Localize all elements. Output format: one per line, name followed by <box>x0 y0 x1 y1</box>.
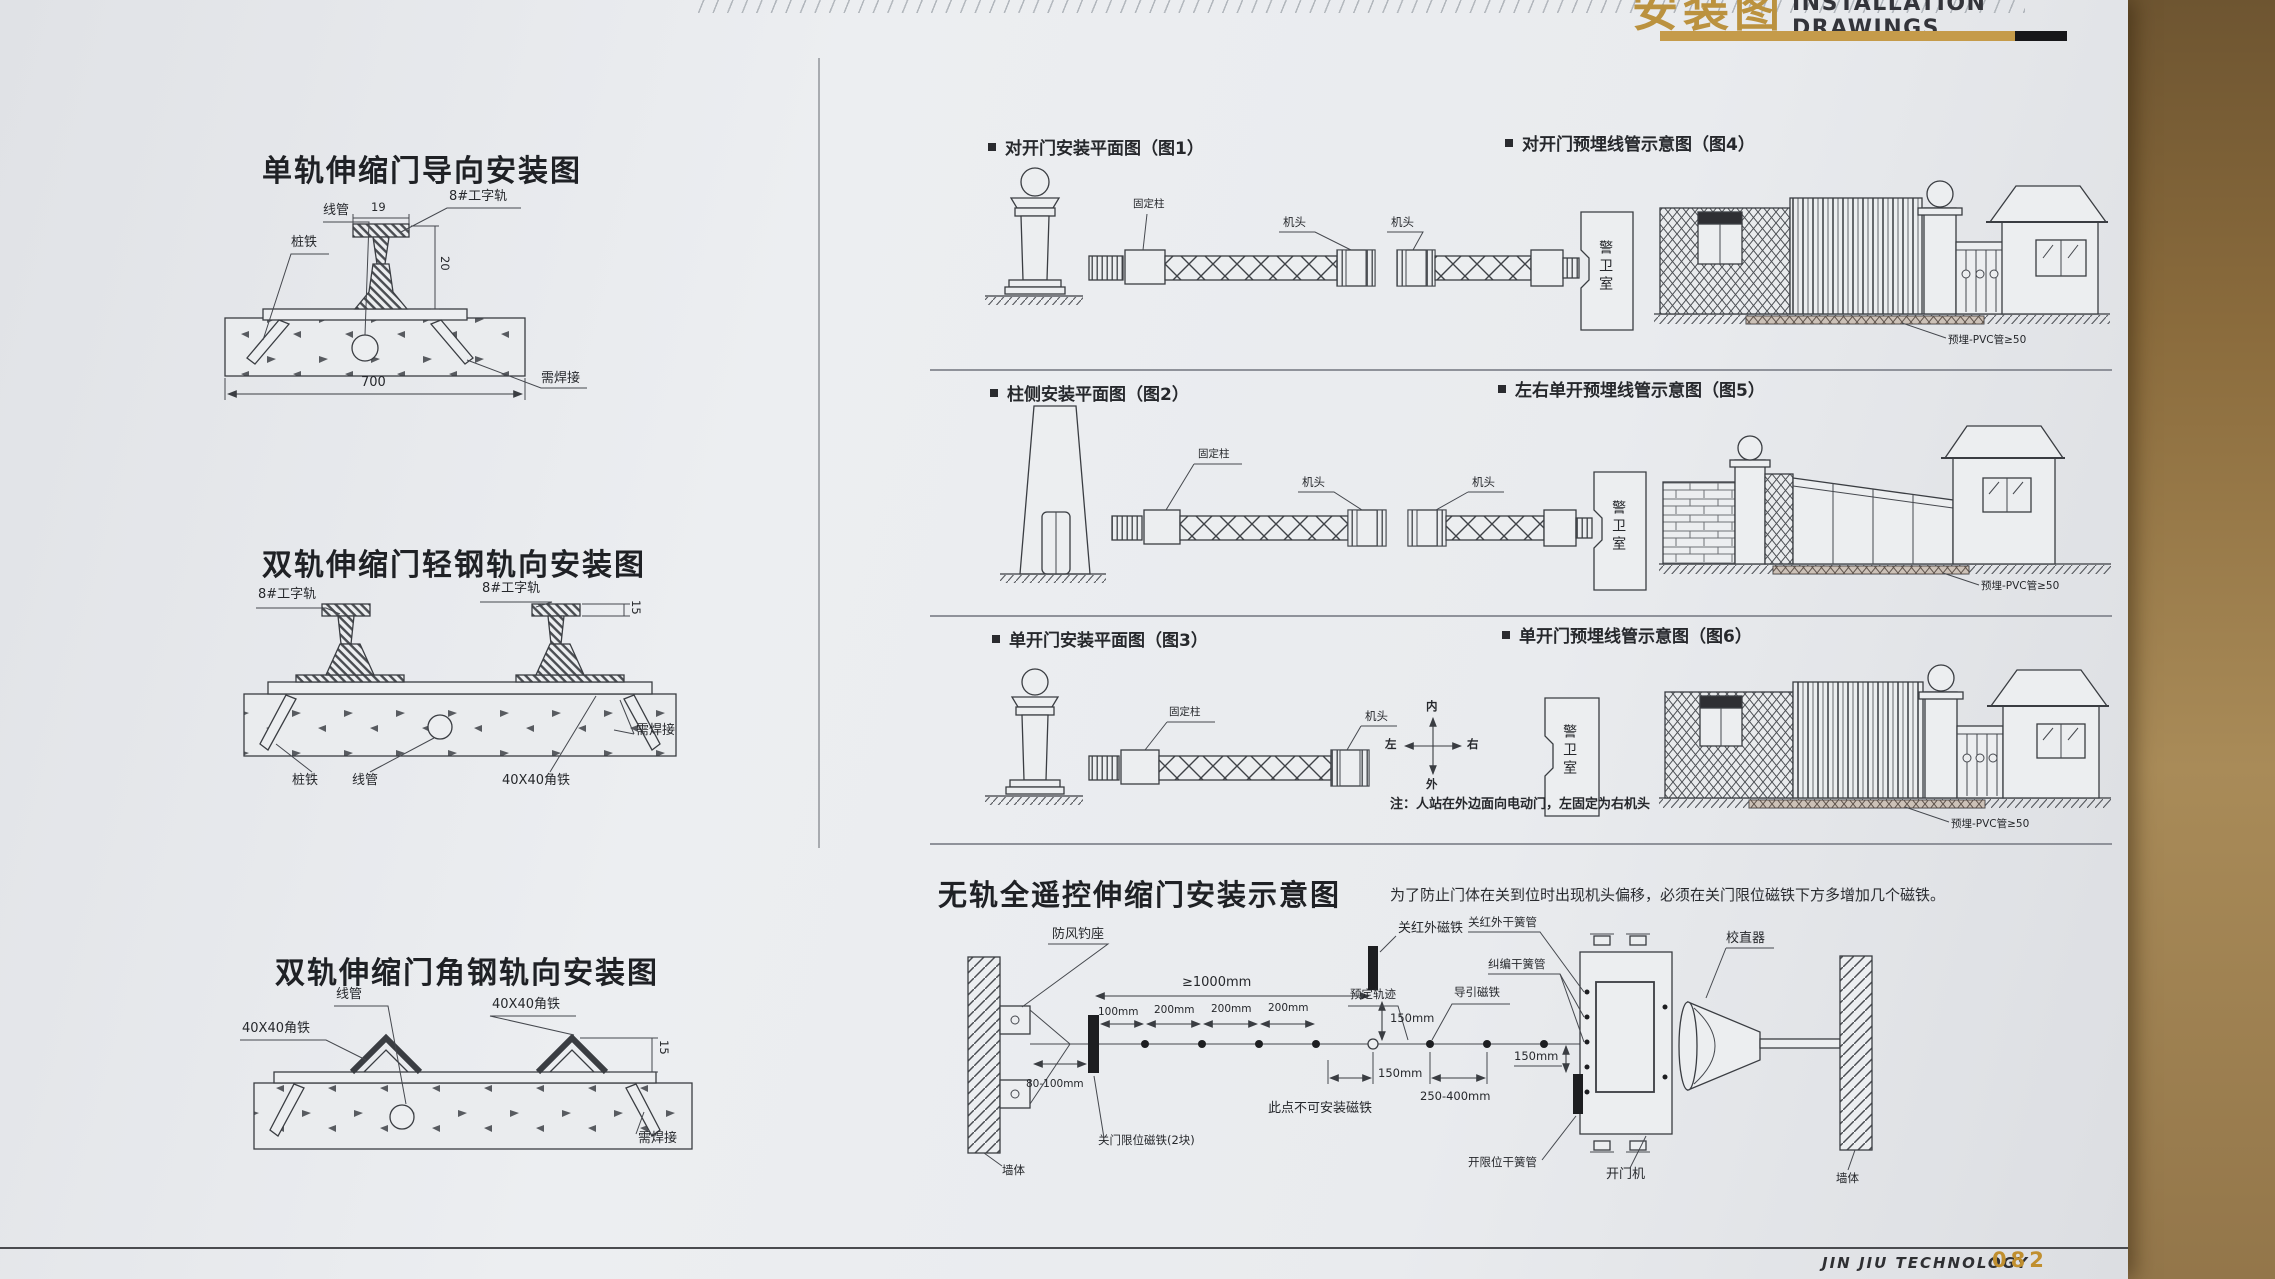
head-label: 机头 <box>1365 710 1388 723</box>
wall-left-label: 墙体 <box>1002 1164 1025 1177</box>
stake-label: 桩铁 <box>292 774 318 789</box>
open-limit-magnet-bar <box>1573 1074 1583 1114</box>
section-title-single-rail: 单轨伸缩门导向安装图 <box>262 146 582 190</box>
dim-100: 100mm <box>1098 1006 1139 1018</box>
gate-pillar-drawing <box>1730 436 1770 564</box>
fixed-post-square <box>1121 750 1159 784</box>
dim-150-b: 150mm <box>1378 1067 1422 1080</box>
wall-stub-right <box>1576 518 1592 538</box>
figure-3-plan-single-gate: 固定柱 机头 警卫室 内 外 左 右 注：人站在外边面向电动门，左固定为右机头 <box>985 658 1725 845</box>
tall-post-elevation-drawing <box>1000 406 1106 583</box>
correction-reed-label: 纠编干簧管 <box>1488 958 1546 971</box>
wall-right-label: 墙体 <box>1836 1172 1859 1185</box>
guide-magnet-label: 导引磁铁 <box>1454 986 1500 999</box>
figure-6-elevation: 预埋-PVC管≥50 <box>1655 628 2115 840</box>
left-wall <box>968 957 1000 1153</box>
catalog-page: 安装图 INSTALLATION DRAWINGS 单轨伸缩门导向安装图 <box>0 0 2128 1279</box>
gate-cover-drawing <box>1793 478 1953 564</box>
machine-head-left <box>1337 250 1375 286</box>
pvc-conduit-label: 预埋-PVC管≥50 <box>1951 818 2029 830</box>
machine-head <box>1331 750 1369 786</box>
picket-fence-drawing <box>1790 198 1922 314</box>
trackless-gate-title: 无轨全遥控伸缩门安装示意图 <box>938 872 1341 914</box>
dim-19: 19 <box>371 201 386 214</box>
figure-1-plan-double-gate: 固定柱 机头 机头 警卫室 <box>985 156 1645 364</box>
row-separator-3 <box>930 843 2112 845</box>
fixed-post-label: 固定柱 <box>1169 706 1201 718</box>
figure-5-elevation: 预埋-PVC管≥50 <box>1655 386 2115 604</box>
fixed-post-square <box>1144 510 1180 544</box>
bullet-icon <box>1505 139 1513 147</box>
fixed-post-label: 固定柱 <box>1133 198 1165 210</box>
gate-lattice-right <box>1446 516 1544 540</box>
pillar-elevation-drawing <box>985 669 1083 805</box>
bullet-icon <box>992 635 1000 643</box>
bullet-icon <box>990 389 998 397</box>
close-limit-magnet-label: 关门限位磁铁(2块) <box>1098 1134 1195 1147</box>
close-limit-magnet-bar <box>1088 1015 1099 1073</box>
close-ir-magnet-label: 关红外磁铁 <box>1398 922 1463 937</box>
pvc-conduit-label: 预埋-PVC管≥50 <box>1981 580 2059 592</box>
column-divider <box>818 58 820 848</box>
concrete-base-drawing <box>244 675 676 756</box>
dim-200-b: 200mm <box>1211 1003 1252 1015</box>
guard-house-drawing <box>1941 426 2065 564</box>
guard-room-label: 警卫室 <box>1597 240 1613 294</box>
i-beam-rails-drawing <box>322 604 584 675</box>
pvc-conduit-label: 预埋-PVC管≥50 <box>1948 334 2026 346</box>
open-limit-reed-label: 开限位干簧管 <box>1468 1156 1537 1169</box>
buried-pvc-conduit-drawing <box>1773 566 1979 585</box>
figure-double-rail-angle-steel: 线管 40X40角铁 40X40角铁 15 需焊接 <box>240 982 730 1212</box>
gold-accent-bar <box>1660 31 2122 41</box>
conduit-label: 线管 <box>352 774 378 789</box>
stake-label: 桩铁 <box>291 236 317 251</box>
dim-700: 700 <box>361 376 386 391</box>
pillar-elevation-drawing <box>985 168 1083 305</box>
figure-trackless-gate-schematic: 防风钓座 ≥1000mm 关红外磁铁 150mm 100mm 200mm 200… <box>930 912 1890 1212</box>
gate-lattice-left <box>1165 256 1337 280</box>
head-right-label: 机头 <box>1391 216 1414 229</box>
conduit-circle <box>428 715 452 739</box>
wind-hook-bracket <box>1000 1006 1070 1108</box>
right-wall <box>1840 956 1872 1150</box>
guard-room-label: 警卫室 <box>1610 500 1626 554</box>
no-magnet-point-circle <box>1368 1039 1378 1049</box>
dim-15: 15 <box>657 1040 670 1055</box>
dim-200-c: 200mm <box>1268 1002 1309 1014</box>
wall-stub-right <box>1563 258 1579 278</box>
end-post <box>1544 510 1576 546</box>
concrete-base-drawing <box>254 1072 692 1149</box>
end-post <box>1531 250 1563 286</box>
row-separator-1 <box>930 369 2112 371</box>
angle-iron-rails-drawing <box>352 1038 606 1072</box>
figure-single-rail-cross-section: 线管 桩铁 8#工字轨 19 20 700 需焊接 <box>205 188 605 428</box>
compass-outside-label: 外 <box>1426 778 1438 791</box>
brick-wall-drawing <box>1663 482 1735 564</box>
conduit-circle <box>352 335 378 361</box>
machine-head-left <box>1348 510 1386 546</box>
figure-4-elevation: 预埋-PVC管≥50 <box>1650 146 2115 356</box>
conduit-circle <box>390 1105 414 1129</box>
figure-double-rail-light-steel: 8#工字轨 8#工字轨 15 需焊接 桩铁 线管 40X40角铁 <box>230 582 710 817</box>
compass-inside-label: 内 <box>1426 700 1438 713</box>
section-title-double-rail-steel: 双轨伸缩门轻钢轨向安装图 <box>262 540 646 584</box>
installation-note: 注：人站在外边面向电动门，左固定为右机头 <box>1390 798 1650 813</box>
angle-right-label: 40X40角铁 <box>492 998 560 1013</box>
dim-20: 20 <box>438 256 451 271</box>
opener-machine <box>1580 934 1672 1152</box>
dim-15: 15 <box>629 600 642 615</box>
head-left-label: 机头 <box>1283 216 1306 229</box>
footer-page-number: 082 <box>1992 1248 2048 1272</box>
picket-fence-drawing <box>1793 682 1923 798</box>
guard-house-drawing <box>1986 186 2108 314</box>
wood-table-background <box>2128 0 2275 1279</box>
rail-left-label: 8#工字轨 <box>258 588 316 603</box>
wall-stub <box>1112 516 1142 540</box>
retractable-gate-drawing <box>1665 692 1793 798</box>
side-gate-drawing <box>1956 242 2004 314</box>
caption-fig3-text: 单开门安装平面图（图3） <box>1009 626 1208 651</box>
dim-250-400: 250-400mm <box>1420 1090 1490 1103</box>
close-ir-reed-label: 关红外干簧管 <box>1468 916 1537 929</box>
trackless-gate-note: 为了防止门体在关到位时出现机头偏移，必须在关门限位磁铁下方多增加几个磁铁。 <box>1390 884 1945 905</box>
footer-rule <box>0 1247 2128 1249</box>
gate-lattice-right <box>1435 256 1531 280</box>
compass-right-label: 右 <box>1467 738 1479 751</box>
retracted-gate-drawing <box>1765 474 1793 564</box>
orientation-compass <box>1405 718 1461 774</box>
track-label: 预定轨迹 <box>1350 988 1396 1001</box>
bullet-icon <box>1502 631 1510 639</box>
guard-room-label: 警卫室 <box>1561 724 1577 778</box>
dim-150-c: 150mm <box>1514 1050 1558 1063</box>
angle-iron-label: 40X40角铁 <box>502 774 570 789</box>
close-ir-magnet-bar <box>1368 946 1378 990</box>
wind-hook-label: 防风钓座 <box>1052 928 1104 943</box>
head-right-label: 机头 <box>1472 476 1495 489</box>
fixed-post-square <box>1125 250 1165 284</box>
row-separator-2 <box>930 615 2112 617</box>
rail-label: 8#工字轨 <box>449 190 507 205</box>
angle-left-label: 40X40角铁 <box>242 1022 310 1037</box>
gate-lattice-left <box>1180 516 1348 540</box>
straightener-label: 校直器 <box>1726 932 1765 947</box>
min-gap-dim: ≥1000mm <box>1182 976 1251 991</box>
weld-label: 需焊接 <box>638 1132 677 1147</box>
conduit-label: 线管 <box>323 204 349 219</box>
straightener-rod <box>1760 1039 1840 1048</box>
guard-house-drawing <box>1987 670 2109 798</box>
machine-head-right <box>1397 250 1435 286</box>
compass-left-label: 左 <box>1385 738 1397 751</box>
conduit-label: 线管 <box>336 988 362 1003</box>
caption-fig3: 单开门安装平面图（图3） <box>992 626 1208 651</box>
rail-right-label: 8#工字轨 <box>482 582 540 597</box>
dim-200-a: 200mm <box>1154 1004 1195 1016</box>
dim-150-a: 150mm <box>1390 1012 1434 1025</box>
opener-label: 开门机 <box>1606 1168 1645 1183</box>
fixed-post-label: 固定柱 <box>1198 448 1230 460</box>
machine-head-right <box>1408 510 1446 546</box>
side-gate-drawing <box>1957 726 2003 798</box>
weld-label: 需焊接 <box>541 372 580 387</box>
buried-pvc-conduit-drawing <box>1749 800 1985 822</box>
straightener-horn <box>1679 1002 1760 1090</box>
figure-2-plan-side-post: 固定柱 机头 机头 警卫室 <box>1000 392 1650 610</box>
i-beam-rail-drawing <box>353 224 409 309</box>
weld-label: 需焊接 <box>636 724 675 739</box>
retractable-gate-drawing <box>1660 208 1790 314</box>
dim-80-100: 80-100mm <box>1026 1078 1084 1090</box>
gate-lattice <box>1159 756 1331 780</box>
wall-stub <box>1089 756 1119 780</box>
wall-stub <box>1089 256 1123 280</box>
bullet-icon <box>988 143 996 151</box>
head-left-label: 机头 <box>1302 476 1325 489</box>
no-magnet-point-label: 此点不可安装磁铁 <box>1268 1102 1372 1117</box>
